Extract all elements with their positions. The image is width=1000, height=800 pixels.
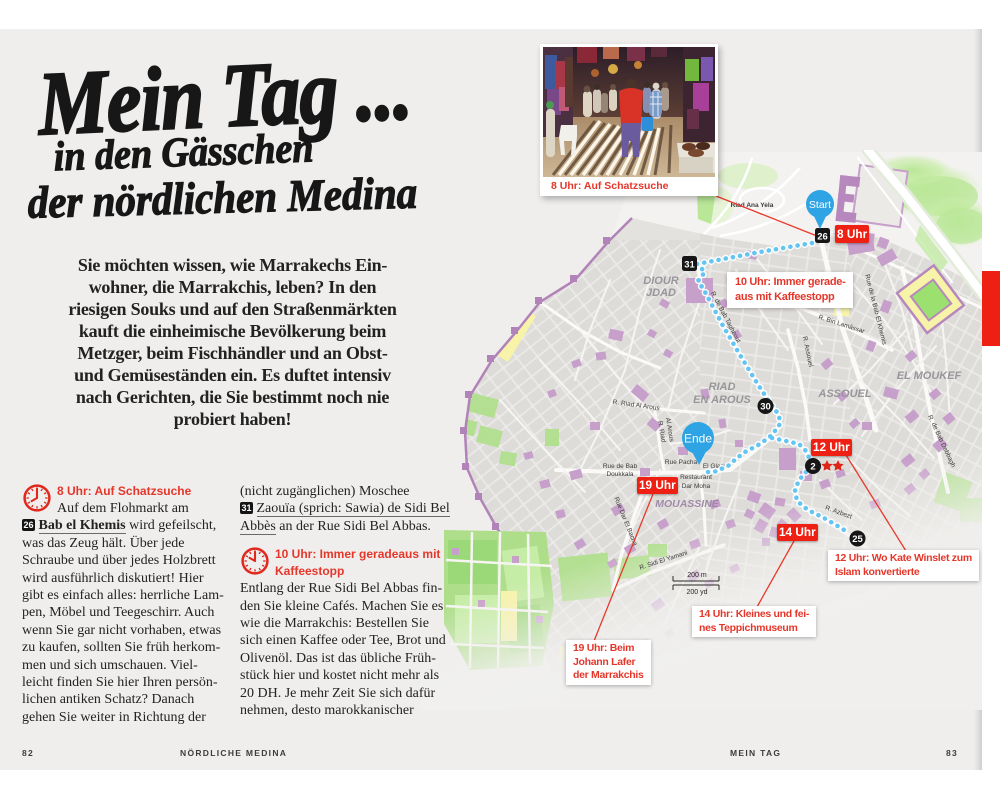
svg-text:EL MOUKEF: EL MOUKEF xyxy=(897,370,962,382)
svg-text:Rue Pacha: Rue Pacha xyxy=(665,459,698,466)
svg-text:ASSOUEL: ASSOUEL xyxy=(817,388,871,400)
svg-text:DIOUR: DIOUR xyxy=(643,275,679,287)
svg-text:Start: Start xyxy=(809,199,831,211)
svg-text:Riad Ana Yela: Riad Ana Yela xyxy=(731,202,774,209)
svg-text:EN AROUS: EN AROUS xyxy=(693,394,751,406)
svg-text:Rue de Bab: Rue de Bab xyxy=(603,463,638,470)
svg-text:30: 30 xyxy=(760,402,771,413)
svg-text:200 m: 200 m xyxy=(687,572,707,579)
svg-text:Ende: Ende xyxy=(684,432,712,446)
svg-text:RIAD: RIAD xyxy=(709,381,736,393)
svg-text:JDAD: JDAD xyxy=(646,287,676,299)
svg-text:31: 31 xyxy=(684,260,695,271)
svg-text:26: 26 xyxy=(817,232,828,243)
svg-text:25: 25 xyxy=(852,534,863,545)
svg-text:200 yd: 200 yd xyxy=(686,589,707,596)
svg-text:MOUASSINE: MOUASSINE xyxy=(655,498,720,510)
svg-text:Dar Moha: Dar Moha xyxy=(682,483,711,490)
svg-text:Doukkala: Doukkala xyxy=(606,471,633,478)
svg-text:2: 2 xyxy=(810,462,815,473)
